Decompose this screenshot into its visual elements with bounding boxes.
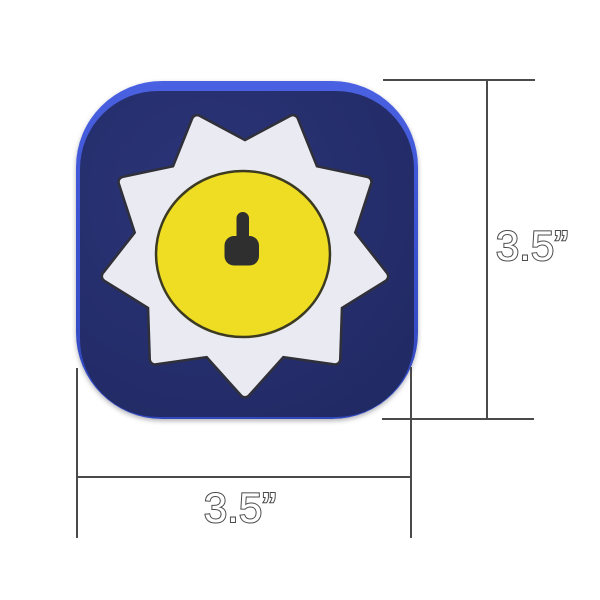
product-dimension-image: 3.5” 3.5” bbox=[0, 0, 600, 600]
key-body bbox=[225, 236, 260, 266]
width-dimension-line bbox=[76, 476, 412, 478]
width-dimension-label-box: 3.5” bbox=[190, 486, 290, 530]
height-dimension-label: 3.5” bbox=[496, 222, 568, 269]
width-extension-line-left bbox=[76, 368, 78, 538]
height-extension-line-top bbox=[383, 79, 535, 81]
height-extension-line-bottom bbox=[382, 418, 534, 420]
height-dimension-label-box: 3.5” bbox=[486, 222, 578, 270]
product-icon bbox=[76, 81, 418, 419]
icon-artwork bbox=[76, 81, 418, 419]
width-extension-line-right bbox=[410, 367, 412, 538]
width-dimension-label: 3.5” bbox=[204, 484, 276, 531]
